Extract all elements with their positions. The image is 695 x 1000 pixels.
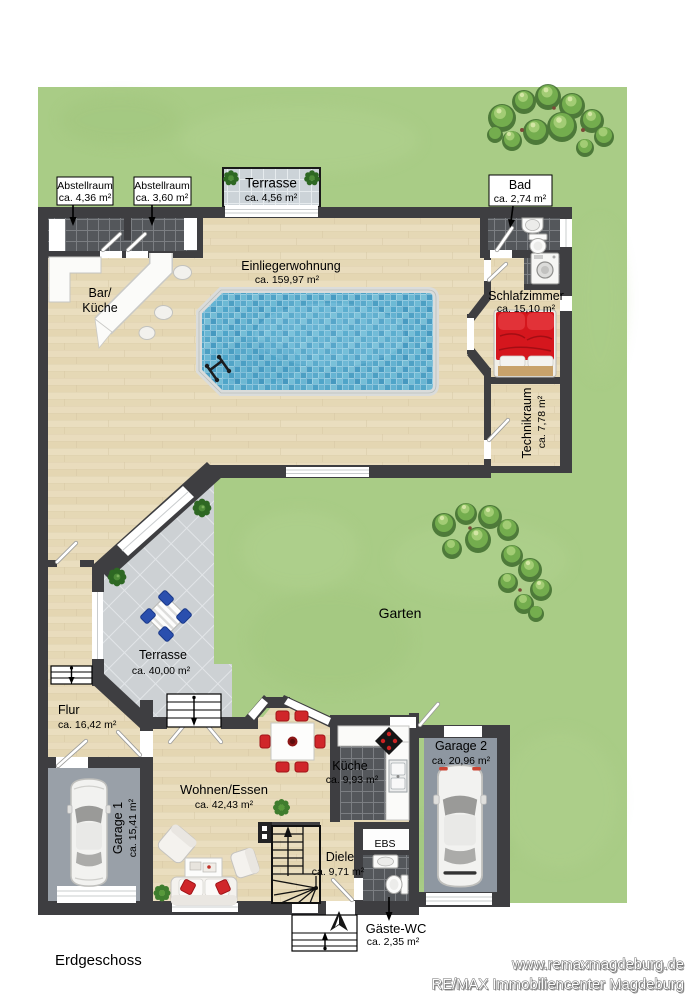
svg-text:ca. 16,42 m²: ca. 16,42 m²	[58, 719, 117, 731]
svg-text:Bad: Bad	[509, 178, 531, 192]
svg-text:Diele: Diele	[326, 850, 355, 864]
svg-text:EBS: EBS	[374, 838, 395, 850]
svg-text:Terrasse: Terrasse	[139, 648, 187, 662]
svg-text:ca. 3,60 m²: ca. 3,60 m²	[136, 192, 189, 204]
svg-text:Terrasse: Terrasse	[245, 176, 297, 191]
svg-text:ca. 2,35 m²: ca. 2,35 m²	[367, 936, 420, 948]
svg-text:ca. 15,41 m²: ca. 15,41 m²	[127, 798, 139, 857]
svg-text:Garage 1: Garage 1	[111, 802, 125, 854]
svg-text:www.remaxmagdeburg.de: www.remaxmagdeburg.de	[511, 957, 684, 973]
svg-text:Technikraum: Technikraum	[520, 388, 534, 459]
svg-text:RE/MAX Immobiliencenter Magdeb: RE/MAX Immobiliencenter Magdeburg	[432, 977, 684, 993]
svg-text:ca. 42,43 m²: ca. 42,43 m²	[195, 799, 254, 811]
svg-text:ca. 20,96 m²: ca. 20,96 m²	[432, 755, 491, 767]
svg-text:Wohnen/Essen: Wohnen/Essen	[180, 782, 268, 797]
svg-text:Küche: Küche	[82, 301, 117, 315]
svg-text:ca. 40,00 m²: ca. 40,00 m²	[132, 665, 191, 677]
svg-text:Küche: Küche	[332, 759, 367, 773]
svg-text:Schlafzimmer: Schlafzimmer	[488, 289, 564, 303]
svg-text:ca. 159,97 m²: ca. 159,97 m²	[255, 274, 320, 286]
svg-text:Bar/: Bar/	[89, 286, 112, 300]
svg-text:Abstellraum: Abstellraum	[134, 180, 190, 192]
svg-text:Abstellraum: Abstellraum	[57, 180, 113, 192]
svg-text:Gäste-WC: Gäste-WC	[366, 921, 427, 936]
svg-text:Erdgeschoss: Erdgeschoss	[55, 952, 142, 969]
svg-text:Garten: Garten	[379, 605, 422, 621]
svg-text:ca. 4,36 m²: ca. 4,36 m²	[59, 192, 112, 204]
svg-text:Garage 2: Garage 2	[435, 739, 487, 753]
svg-text:ca. 9,71 m²: ca. 9,71 m²	[312, 866, 365, 878]
svg-text:ca. 7,78 m²: ca. 7,78 m²	[536, 395, 548, 448]
svg-text:ca. 2,74 m²: ca. 2,74 m²	[494, 193, 547, 205]
svg-text:ca. 4,56 m²: ca. 4,56 m²	[245, 192, 298, 204]
svg-text:ca. 9,93 m²: ca. 9,93 m²	[326, 774, 379, 786]
svg-text:ca. 15,10 m²: ca. 15,10 m²	[497, 303, 556, 315]
svg-text:Flur: Flur	[58, 703, 80, 717]
svg-text:Einliegerwohnung: Einliegerwohnung	[241, 259, 340, 273]
